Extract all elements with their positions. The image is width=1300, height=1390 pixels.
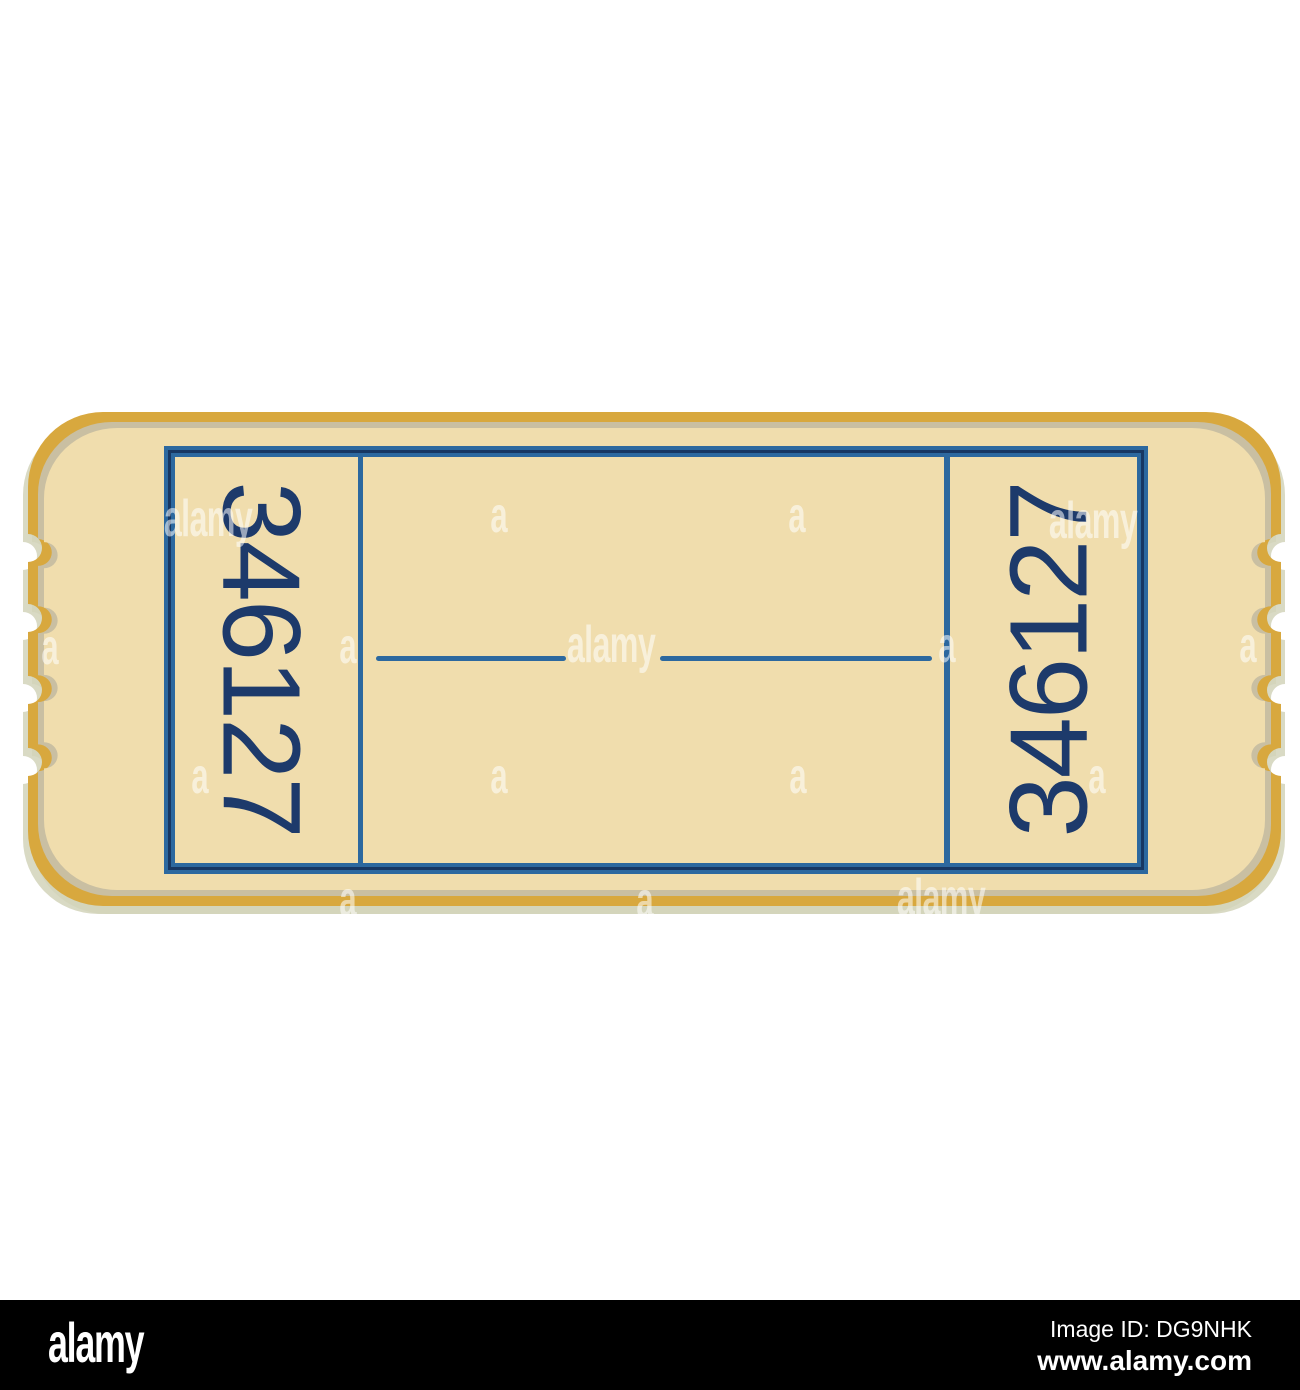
alamy-watermark-letter: a (339, 617, 356, 675)
alamy-credit-bar: alamy Image ID: DG9NHK www.alamy.com (0, 1300, 1300, 1390)
alamy-watermark-letter: a (636, 871, 653, 929)
alamy-watermark-letter: a (788, 486, 805, 544)
alamy-watermark-letter: a (1239, 616, 1256, 674)
alamy-watermark-letter: a (490, 747, 507, 805)
alamy-watermark-letter: a (41, 618, 58, 676)
alamy-watermark-letter: a (789, 747, 806, 805)
image-id-text: Image ID: DG9NHK (1037, 1316, 1252, 1342)
alamy-watermark-letter: a (938, 616, 955, 674)
alamy-watermark-word: alamy (567, 615, 655, 675)
stock-photo-page: 346127 346127 alamy a a alamy a a alamy … (0, 0, 1300, 1390)
alamy-watermark-letter: a (1088, 747, 1105, 805)
credit-text-block: Image ID: DG9NHK www.alamy.com (1037, 1316, 1252, 1377)
alamy-watermark-letter: a (191, 747, 208, 805)
alamy-watermark-word: alamy (164, 489, 252, 549)
alamy-watermark-word: alamy (897, 868, 985, 928)
alamy-watermark-letter: a (490, 486, 507, 544)
alamy-watermark-letter: a (339, 870, 356, 928)
alamy-logo: alamy (48, 1310, 143, 1375)
ticket-rule-line-left (376, 656, 566, 661)
ticket-rule-line-right (660, 656, 932, 661)
alamy-watermark-word: alamy (1049, 491, 1137, 551)
alamy-website-text: www.alamy.com (1037, 1345, 1252, 1377)
